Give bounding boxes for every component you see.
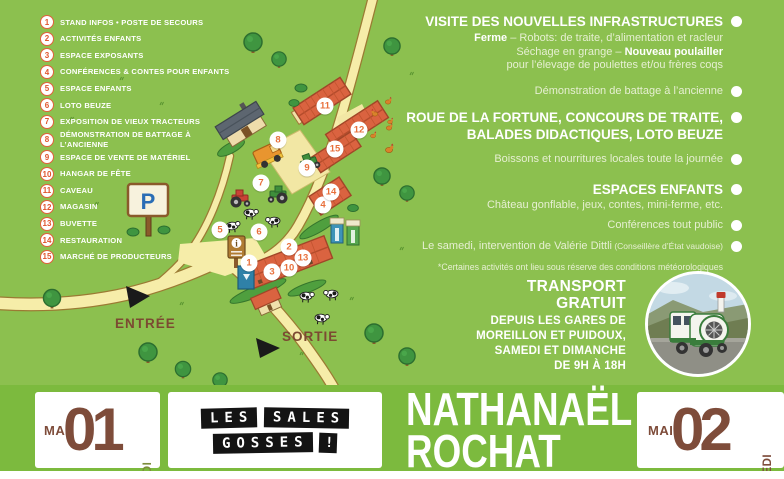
legend-label: LOTO BEUZE bbox=[60, 101, 111, 110]
legend-label: CONFÉRENCES & CONTES POUR ENFANTS bbox=[60, 67, 229, 76]
legend-number-badge: 2 bbox=[40, 32, 54, 46]
espaces-heading-row: ESPACES ENFANTS bbox=[593, 181, 742, 198]
legend-item-9: 9ESPACE DE VENTE DE MATÉRIEL bbox=[40, 149, 240, 166]
artist-first-name: NATHANAËL bbox=[406, 388, 632, 430]
date-card-may-1: MAI 01 VENDREDI bbox=[35, 392, 160, 468]
sechage-text: Séchage en grange – bbox=[516, 46, 624, 58]
map-marker-9: 9 bbox=[299, 160, 316, 177]
bullet-icon bbox=[731, 86, 742, 97]
artist-last-name: ROCHAT bbox=[406, 430, 632, 472]
ferme-label: Ferme bbox=[474, 32, 507, 44]
legend-item-15: 15MARCHÉ DE PRODUCTEURS bbox=[40, 249, 240, 266]
demo-text: Démonstration de battage à l’ancienne bbox=[535, 85, 723, 99]
legend-item-13: 13BUVETTE bbox=[40, 216, 240, 233]
demo-row: Démonstration de battage à l’ancienne bbox=[535, 85, 742, 99]
transport-block: TRANSPORT GRATUIT DEPUIS LES GARES DE MO… bbox=[476, 278, 626, 374]
legend-item-3: 3ESPACE EXPOSANTS bbox=[40, 47, 240, 64]
espaces-title: ESPACES ENFANTS bbox=[593, 181, 723, 198]
legend-number-badge: 5 bbox=[40, 82, 54, 96]
legend-number-badge: 11 bbox=[40, 184, 54, 198]
legend-label: MARCHÉ DE PRODUCTEURS bbox=[60, 252, 172, 261]
samedi-text: Le samedi, intervention de Valérie Dittl… bbox=[422, 240, 612, 252]
legend-item-8: 8DÉMONSTRATION DE BATTAGE À L’ANCIENNE bbox=[40, 130, 240, 149]
legend-item-14: 14RESTAURATION bbox=[40, 232, 240, 249]
transport-line2: MOREILLON ET PUIDOUX, bbox=[476, 329, 626, 344]
map-marker-8: 8 bbox=[270, 132, 287, 149]
legend-number-badge: 12 bbox=[40, 200, 54, 214]
transport-line4: DE 9H À 18H bbox=[476, 359, 626, 374]
bullet-icon bbox=[731, 154, 742, 165]
roue-heading-row: ROUE DE LA FORTUNE, CONCOURS DE TRAITE, … bbox=[406, 109, 742, 143]
map-marker-7: 7 bbox=[253, 175, 270, 192]
legend-label: ESPACE ENFANTS bbox=[60, 84, 132, 93]
legend-item-10: 10HANGAR DE FÊTE bbox=[40, 166, 240, 183]
bullet-icon bbox=[731, 220, 742, 231]
elevage-text: pour l’élevage de poulettes et/ou frères… bbox=[474, 59, 723, 73]
tractor-green bbox=[268, 186, 288, 204]
infrastructures-details: Ferme – Robots: de traite, d’alimentatio… bbox=[474, 32, 742, 73]
transport-title-line2: GRATUIT bbox=[476, 295, 626, 312]
legend-label: RESTAURATION bbox=[60, 236, 122, 245]
legend-label: EXPOSITION DE VIEUX TRACTEURS bbox=[60, 117, 200, 126]
ferme-text: – Robots: de traite, d’alimentation et r… bbox=[507, 32, 723, 44]
transport-title-line1: TRANSPORT bbox=[476, 278, 626, 295]
roue-title-line1: ROUE DE LA FORTUNE, CONCOURS DE TRAITE, bbox=[406, 109, 723, 126]
legend-item-2: 2ACTIVITÉS ENFANTS bbox=[40, 31, 240, 48]
espaces-sub-text: Château gonflable, jeux, contes, mini-fe… bbox=[487, 199, 742, 213]
show-word: GOSSES bbox=[213, 432, 313, 454]
legend-item-6: 6LOTO BEUZE bbox=[40, 97, 240, 114]
legend-number-badge: 7 bbox=[40, 115, 54, 129]
conferences-text: Conférences tout public bbox=[607, 219, 723, 233]
entrance-label: ENTRÉE bbox=[115, 316, 176, 331]
legend-item-11: 11CAVEAU bbox=[40, 182, 240, 199]
legend-label: HANGAR DE FÊTE bbox=[60, 169, 131, 178]
legend-number-badge: 6 bbox=[40, 98, 54, 112]
samedi-paren-text: (Conseillère d’État vaudoise) bbox=[612, 241, 723, 251]
transport-line1: DEPUIS LES GARES DE bbox=[476, 314, 626, 329]
legend-number-badge: 3 bbox=[40, 48, 54, 62]
conferences-row: Conférences tout public bbox=[607, 219, 742, 233]
map-marker-14: 14 bbox=[323, 184, 340, 201]
legend-number-badge: 14 bbox=[40, 233, 54, 247]
legend-item-7: 7EXPOSITION DE VIEUX TRACTEURS bbox=[40, 114, 240, 131]
infrastructures-title: VISITE DES NOUVELLES INFRASTRUCTURES bbox=[425, 13, 723, 30]
roue-title-line2: BALADES DIDACTIQUES, LOTO BEUZE bbox=[406, 126, 723, 143]
legend-number-badge: 8 bbox=[40, 133, 54, 147]
legend-label: ESPACE DE VENTE DE MATÉRIEL bbox=[60, 153, 191, 162]
map-marker-3: 3 bbox=[264, 264, 281, 281]
bullet-icon bbox=[731, 16, 742, 27]
artist-name: NATHANAËL ROCHAT bbox=[406, 388, 689, 473]
legend-item-1: 1STAND INFOS • POSTE DE SECOURS bbox=[40, 14, 240, 31]
portable-toilets bbox=[330, 218, 360, 245]
legend-label: CAVEAU bbox=[60, 186, 93, 195]
legend-label: STAND INFOS • POSTE DE SECOURS bbox=[60, 18, 203, 27]
exit-label: SORTIE bbox=[282, 329, 338, 344]
legend-item-12: 12MAGASIN bbox=[40, 199, 240, 216]
legend-number-badge: 13 bbox=[40, 217, 54, 231]
bullet-icon bbox=[731, 112, 742, 123]
poulailler-label: Nouveau poulailler bbox=[625, 46, 723, 58]
legend-number-badge: 10 bbox=[40, 167, 54, 181]
show-word: SALES bbox=[263, 407, 348, 428]
bullet-icon bbox=[731, 184, 742, 195]
legend-number-badge: 1 bbox=[40, 15, 54, 29]
event-poster: P i bbox=[0, 0, 784, 479]
legend-number-badge: 15 bbox=[40, 250, 54, 264]
legend-label: BUVETTE bbox=[60, 219, 97, 228]
legend-label: MAGASIN bbox=[60, 202, 98, 211]
map-marker-1: 1 bbox=[241, 255, 258, 272]
legend-label: ACTIVITÉS ENFANTS bbox=[60, 34, 141, 43]
date-number: 01 bbox=[63, 400, 120, 460]
exit-arrow-icon bbox=[256, 338, 280, 358]
legend-number-badge: 9 bbox=[40, 150, 54, 164]
map-marker-15: 15 bbox=[327, 141, 344, 158]
transport-line3: SAMEDI ET DIMANCHE bbox=[476, 344, 626, 359]
legend-item-5: 5ESPACE ENFANTS bbox=[40, 80, 240, 97]
map-marker-13: 13 bbox=[295, 250, 312, 267]
legend-item-4: 4CONFÉRENCES & CONTES POUR ENFANTS bbox=[40, 64, 240, 81]
program-panel: VISITE DES NOUVELLES INFRASTRUCTURES Fer… bbox=[402, 13, 742, 272]
legend-label: DÉMONSTRATION DE BATTAGE À L’ANCIENNE bbox=[60, 130, 240, 149]
tourist-train-photo bbox=[645, 271, 751, 377]
map-marker-11: 11 bbox=[317, 98, 334, 115]
legend-number-badge: 4 bbox=[40, 65, 54, 79]
train-illustration bbox=[648, 274, 748, 374]
map-marker-6: 6 bbox=[251, 224, 268, 241]
show-exclamation: ! bbox=[318, 432, 337, 453]
boissons-text: Boissons et nourritures locales toute la… bbox=[494, 153, 723, 167]
samedi-row: Le samedi, intervention de Valérie Dittl… bbox=[422, 240, 742, 254]
show-title-card: LES SALES GOSSES ! bbox=[168, 392, 382, 468]
legend: 1STAND INFOS • POSTE DE SECOURS2ACTIVITÉ… bbox=[40, 14, 240, 265]
infrastructures-heading-row: VISITE DES NOUVELLES INFRASTRUCTURES bbox=[425, 13, 742, 30]
legend-label: ESPACE EXPOSANTS bbox=[60, 51, 144, 60]
show-word: LES bbox=[201, 407, 258, 428]
map-marker-12: 12 bbox=[351, 122, 368, 139]
boissons-row: Boissons et nourritures locales toute la… bbox=[494, 153, 742, 167]
bullet-icon bbox=[731, 241, 742, 252]
